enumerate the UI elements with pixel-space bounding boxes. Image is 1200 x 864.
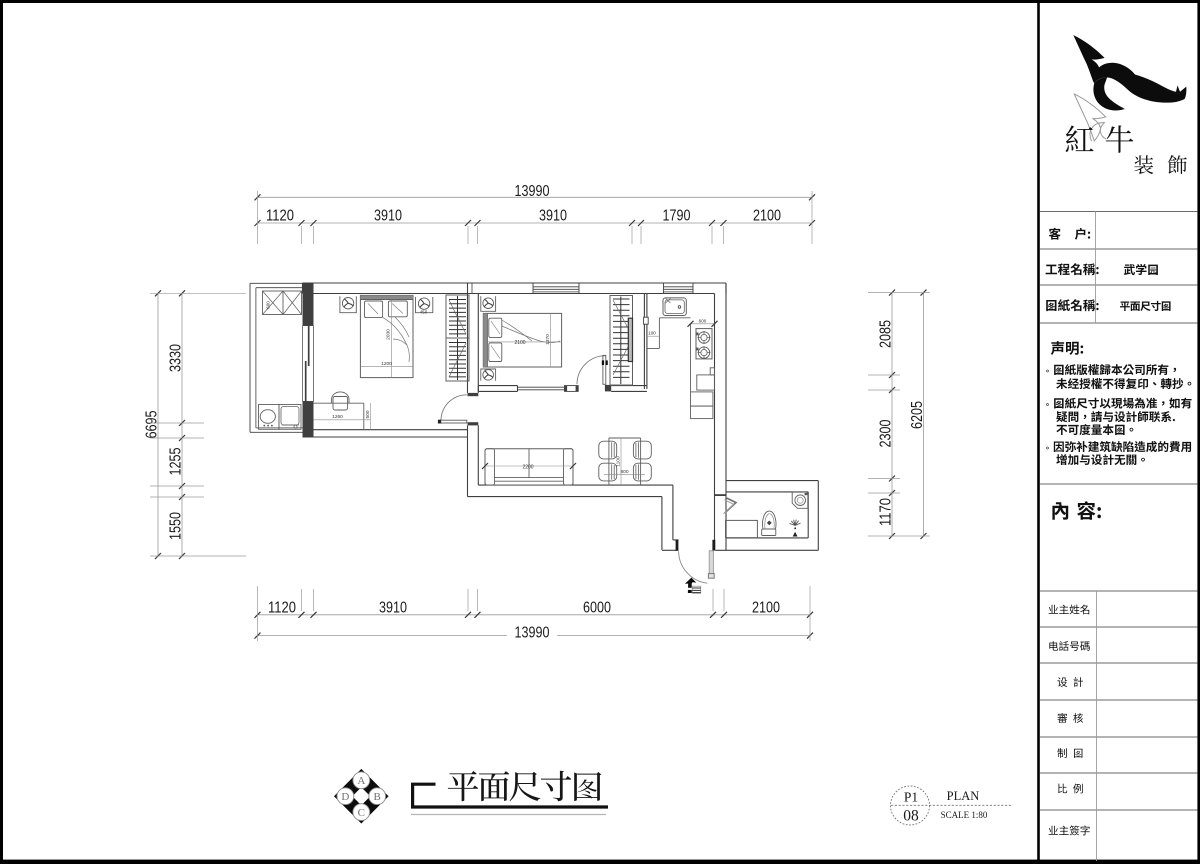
svg-text:6205: 6205 [909,401,926,429]
svg-text:2200: 2200 [522,464,533,470]
svg-text:6695: 6695 [143,410,160,438]
svg-text:1260: 1260 [332,414,343,420]
svg-text:500: 500 [365,410,371,418]
svg-text:2300: 2300 [877,419,894,447]
svg-text:2085: 2085 [877,320,894,348]
svg-text:450: 450 [420,310,428,315]
svg-text:800: 800 [620,469,628,475]
svg-text:2030: 2030 [386,329,392,340]
svg-text:2100: 2100 [514,340,525,346]
svg-text:1200: 1200 [381,361,392,367]
svg-text:3330: 3330 [168,344,185,372]
svg-text:PLAN: PLAN [947,789,980,803]
svg-text:3910: 3910 [374,208,402,225]
svg-text:SCALE 1:80: SCALE 1:80 [941,810,988,820]
svg-text:1790: 1790 [663,208,691,225]
svg-text:3910: 3910 [539,208,567,225]
svg-text:3910: 3910 [379,600,407,617]
svg-text:P1: P1 [904,790,918,805]
svg-text:13990: 13990 [515,624,550,641]
svg-text:2100: 2100 [752,600,780,617]
svg-text:600: 600 [699,319,707,324]
svg-text:B: B [374,791,381,803]
svg-text:A: A [357,775,365,787]
svg-text:1370: 1370 [545,334,551,345]
svg-text:13990: 13990 [515,183,550,200]
svg-text:1100: 1100 [616,456,622,467]
svg-text:2100: 2100 [753,208,781,225]
svg-text:D: D [341,791,349,803]
svg-text:1255: 1255 [168,447,185,475]
svg-text:100: 100 [648,331,656,336]
svg-text:1120: 1120 [268,600,296,617]
svg-text:1550: 1550 [168,512,185,540]
svg-text:C: C [358,807,365,819]
svg-text:1120: 1120 [266,208,294,225]
svg-text:600: 600 [266,301,271,309]
svg-text:6000: 6000 [583,600,611,617]
svg-text:1170: 1170 [877,498,894,526]
svg-text:08: 08 [903,808,919,825]
